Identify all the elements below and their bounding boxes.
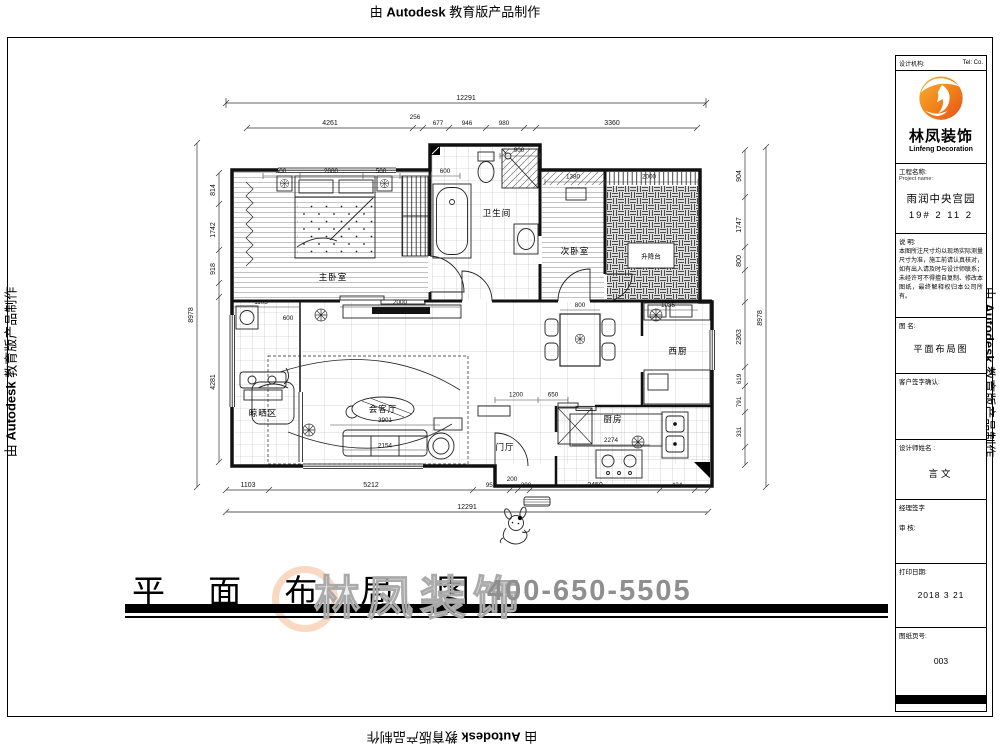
room-label-tatami-table: 升降台 bbox=[641, 252, 661, 261]
svg-text:1103: 1103 bbox=[240, 482, 255, 489]
svg-text:200: 200 bbox=[507, 476, 518, 483]
page-number-label: 图纸页号: bbox=[896, 628, 986, 640]
svg-text:1085: 1085 bbox=[661, 302, 676, 309]
svg-text:3901: 3901 bbox=[378, 417, 393, 424]
svg-text:900: 900 bbox=[514, 147, 525, 154]
room-label-west-kitchen: 西厨 bbox=[668, 346, 687, 356]
svg-text:800: 800 bbox=[736, 255, 743, 267]
svg-text:3360: 3360 bbox=[604, 120, 620, 127]
svg-text:1103: 1103 bbox=[254, 299, 268, 306]
svg-text:256: 256 bbox=[410, 114, 421, 121]
project-name-value: 雨润中央宫园 bbox=[896, 191, 986, 206]
room-label-bathroom: 卫生间 bbox=[483, 208, 512, 218]
svg-text:1747: 1747 bbox=[736, 217, 743, 233]
svg-text:1380: 1380 bbox=[566, 174, 581, 181]
project-name-sublabel: Project name: bbox=[896, 176, 986, 182]
svg-text:650: 650 bbox=[548, 392, 559, 399]
svg-text:918: 918 bbox=[210, 263, 217, 275]
title-block-bottom-bar bbox=[896, 696, 986, 704]
page-number-value: 003 bbox=[896, 656, 986, 666]
svg-text:300: 300 bbox=[521, 482, 532, 489]
svg-text:331: 331 bbox=[736, 426, 743, 437]
drawing-sheet: 由 Autodesk 教育版产品制作 由 Autodesk 教育版产品制作 由 … bbox=[0, 0, 1000, 750]
svg-text:677: 677 bbox=[433, 120, 444, 127]
svg-text:2000: 2000 bbox=[642, 174, 657, 181]
svg-text:8978: 8978 bbox=[188, 307, 195, 323]
mascot-doodle bbox=[500, 497, 550, 544]
svg-text:904: 904 bbox=[736, 170, 743, 182]
company-logo-icon bbox=[916, 74, 966, 124]
review-label: 审 核: bbox=[896, 520, 986, 532]
client-signature-label: 客户签字确认: bbox=[896, 374, 986, 386]
svg-text:4261: 4261 bbox=[322, 120, 338, 127]
room-label-entry-hall: 门厅 bbox=[495, 442, 514, 452]
watermark-phone: 400-650-5505 bbox=[487, 575, 692, 608]
svg-text:2363: 2363 bbox=[736, 329, 743, 345]
svg-text:2154: 2154 bbox=[378, 443, 393, 450]
svg-text:1200: 1200 bbox=[509, 392, 524, 399]
svg-text:2000: 2000 bbox=[324, 168, 339, 175]
svg-text:424: 424 bbox=[672, 482, 683, 489]
svg-text:500: 500 bbox=[276, 168, 287, 175]
svg-text:2000: 2000 bbox=[393, 299, 408, 306]
print-date-label: 打印日期: bbox=[896, 564, 986, 576]
svg-text:4281: 4281 bbox=[210, 374, 217, 390]
svg-text:800: 800 bbox=[575, 302, 586, 309]
floor-plan: 主卧室 卫生间 次卧室 升降台 晾晒区 会客厅 门厅 厨房 西厨 bbox=[0, 0, 1000, 750]
svg-text:12291: 12291 bbox=[457, 504, 477, 511]
notes-text: 本图所注尺寸均以现场实际测量尺寸为准，施工前请认真核对，如有出入请及时与设计师联… bbox=[899, 248, 983, 302]
svg-text:600: 600 bbox=[440, 168, 451, 175]
svg-text:8978: 8978 bbox=[757, 310, 764, 326]
svg-text:814: 814 bbox=[210, 184, 217, 196]
svg-text:2274: 2274 bbox=[604, 437, 619, 444]
room-label-kitchen: 厨房 bbox=[603, 414, 622, 424]
designer-name-value: 言文 bbox=[896, 466, 986, 480]
svg-text:5212: 5212 bbox=[363, 482, 379, 489]
drawing-name-label: 图 名: bbox=[896, 318, 986, 330]
project-unit-value: 19# 2 11 2 bbox=[896, 210, 986, 221]
print-date-value: 2018 3 21 bbox=[896, 590, 986, 600]
manager-signature-label: 经理签字 bbox=[896, 500, 986, 512]
designer-name-label: 设计师姓名 : bbox=[896, 440, 986, 452]
title-block: 设计机构: Tel: Co. 林凤装饰 Linfeng Decoration 工… bbox=[895, 55, 987, 712]
svg-text:791: 791 bbox=[736, 396, 743, 407]
drawing-name-value: 平面布局图 bbox=[896, 342, 986, 355]
design-firm-contact: Tel: Co. bbox=[963, 60, 983, 66]
design-firm-label: 设计机构: bbox=[899, 59, 925, 68]
svg-text:500: 500 bbox=[376, 168, 387, 175]
room-label-second-bedroom: 次卧室 bbox=[561, 246, 590, 256]
room-label-master-bedroom: 主卧室 bbox=[319, 272, 348, 282]
project-name-label: 工程名称: bbox=[896, 164, 986, 176]
svg-text:2450: 2450 bbox=[587, 482, 603, 489]
svg-text:946: 946 bbox=[462, 120, 473, 127]
svg-text:980: 980 bbox=[499, 120, 510, 127]
company-name: 林凤装饰 bbox=[896, 125, 986, 146]
svg-text:12291: 12291 bbox=[456, 95, 476, 102]
svg-text:600: 600 bbox=[283, 315, 294, 322]
svg-text:619: 619 bbox=[736, 373, 743, 384]
company-name-en: Linfeng Decoration bbox=[896, 146, 986, 153]
room-label-drying-area: 晾晒区 bbox=[249, 408, 278, 418]
svg-text:1742: 1742 bbox=[210, 222, 217, 238]
room-label-living-room: 会客厅 bbox=[369, 404, 398, 414]
svg-text:953: 953 bbox=[486, 482, 497, 489]
notes-label: 说 明: bbox=[896, 234, 986, 246]
